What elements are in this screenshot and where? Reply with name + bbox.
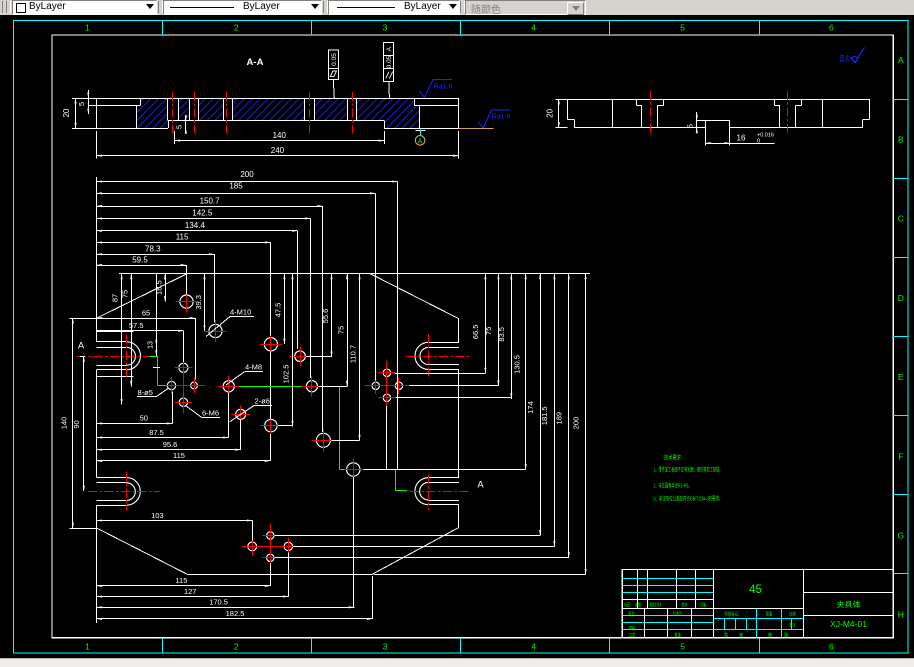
- svg-text:59.5: 59.5: [132, 255, 148, 264]
- svg-text:1: 1: [85, 642, 90, 652]
- svg-text:1、零件加工表面不应有划痕、擦伤等加工缺陷。: 1、零件加工表面不应有划痕、擦伤等加工缺陷。: [654, 466, 723, 474]
- svg-text:200: 200: [240, 170, 254, 179]
- svg-text:134.4: 134.4: [185, 221, 206, 230]
- svg-text:103: 103: [151, 511, 164, 520]
- svg-text:2: 2: [234, 23, 239, 33]
- svg-text:6-M6: 6-M6: [202, 409, 219, 418]
- svg-text:更改文件号: 更改文件号: [650, 601, 662, 608]
- svg-text:20: 20: [546, 108, 555, 117]
- svg-text:4-M8: 4-M8: [245, 363, 262, 372]
- svg-text:E: E: [898, 372, 904, 382]
- svg-text:115: 115: [176, 233, 189, 242]
- svg-text:G: G: [897, 531, 904, 541]
- svg-text:审核: 审核: [629, 625, 636, 632]
- svg-text:115: 115: [175, 576, 187, 585]
- svg-text:65: 65: [142, 308, 150, 317]
- svg-text:A: A: [418, 138, 423, 145]
- svg-text:189: 189: [555, 412, 564, 425]
- svg-text:57.5: 57.5: [129, 321, 144, 330]
- svg-text:78.3: 78.3: [145, 245, 161, 254]
- svg-text:102.5: 102.5: [282, 365, 291, 384]
- svg-text:5: 5: [680, 642, 685, 652]
- svg-text:张: 张: [739, 632, 744, 639]
- svg-text:1: 1: [85, 23, 90, 33]
- svg-text:H: H: [898, 610, 904, 620]
- svg-text:D: D: [898, 293, 904, 303]
- svg-text:比例: 比例: [789, 611, 796, 618]
- svg-text:16: 16: [737, 134, 746, 143]
- svg-text:其余: 其余: [840, 54, 850, 64]
- svg-text:设计: 设计: [628, 610, 635, 617]
- svg-text:Ra1.6: Ra1.6: [434, 84, 453, 91]
- svg-text:47.5: 47.5: [274, 303, 283, 318]
- svg-text:6: 6: [829, 642, 834, 652]
- svg-text:66.5: 66.5: [471, 325, 480, 340]
- svg-text:83.5: 83.5: [497, 327, 506, 342]
- svg-text:6: 6: [829, 23, 834, 33]
- svg-text:140: 140: [273, 131, 287, 140]
- svg-text:夹具体: 夹具体: [837, 599, 862, 609]
- svg-text:共: 共: [724, 632, 729, 639]
- svg-text:5: 5: [175, 125, 184, 129]
- svg-text:20: 20: [62, 108, 71, 117]
- svg-text:87: 87: [111, 294, 120, 302]
- svg-text:A-A: A-A: [247, 57, 264, 68]
- svg-text:A: A: [386, 46, 393, 51]
- svg-text:240: 240: [271, 146, 285, 155]
- svg-text:150.7: 150.7: [200, 196, 221, 205]
- svg-text:170.5: 170.5: [209, 598, 228, 607]
- svg-text:质量: 质量: [766, 611, 773, 618]
- svg-text:批准: 批准: [674, 632, 681, 639]
- svg-text:4: 4: [531, 642, 536, 652]
- svg-text:181.5: 181.5: [540, 406, 549, 425]
- svg-text:第: 第: [768, 632, 773, 639]
- svg-text:110.7: 110.7: [349, 345, 358, 363]
- svg-text:2: 2: [234, 642, 239, 652]
- svg-text:标记: 标记: [624, 601, 630, 608]
- svg-text:Ra1.6: Ra1.6: [492, 114, 511, 121]
- svg-text:标准化: 标准化: [673, 610, 681, 617]
- svg-text:3: 3: [383, 23, 388, 33]
- svg-text:3: 3: [383, 642, 388, 652]
- svg-text:4: 4: [531, 23, 536, 33]
- svg-text:工艺: 工艺: [629, 633, 636, 638]
- svg-text:140: 140: [60, 417, 69, 430]
- svg-text:0: 0: [757, 139, 760, 145]
- svg-text:200: 200: [571, 417, 580, 430]
- svg-text:处数: 处数: [635, 601, 641, 608]
- svg-text:5: 5: [680, 23, 685, 33]
- svg-text:50: 50: [140, 414, 148, 423]
- svg-text:4-M10: 4-M10: [230, 308, 251, 317]
- svg-text:0.05: 0.05: [386, 55, 393, 68]
- svg-text:3、未注形位公差应符合GB/T1184-3的要求。: 3、未注形位公差应符合GB/T1184-3的要求。: [654, 495, 723, 503]
- svg-text:1:1: 1:1: [789, 623, 796, 629]
- svg-text:13: 13: [147, 341, 154, 349]
- svg-text:90: 90: [72, 420, 81, 428]
- svg-text:签字: 签字: [682, 601, 688, 607]
- svg-text:87.5: 87.5: [149, 428, 164, 437]
- svg-text:B: B: [898, 135, 904, 145]
- svg-text:A: A: [898, 55, 904, 65]
- svg-text:5: 5: [77, 102, 86, 106]
- svg-text:张: 张: [784, 632, 789, 639]
- svg-text:C: C: [898, 214, 904, 224]
- svg-text:130.5: 130.5: [512, 355, 521, 374]
- svg-text:18.5: 18.5: [155, 280, 164, 295]
- svg-text:XJ-M4-01: XJ-M4-01: [830, 619, 867, 629]
- svg-text:A: A: [78, 341, 85, 352]
- svg-text:2-ø6: 2-ø6: [255, 397, 270, 406]
- svg-text:2、未注圆角半径R3~R5。: 2、未注圆角半径R3~R5。: [654, 482, 692, 490]
- svg-text:185: 185: [229, 182, 243, 191]
- svg-text:75: 75: [121, 290, 130, 298]
- svg-text:115: 115: [173, 451, 185, 460]
- svg-text:127: 127: [184, 587, 197, 596]
- svg-text:5: 5: [686, 124, 695, 128]
- svg-text:39.3: 39.3: [194, 295, 203, 310]
- svg-text:A: A: [477, 480, 484, 491]
- svg-text:55.6: 55.6: [321, 309, 330, 324]
- svg-text:45: 45: [749, 584, 762, 596]
- svg-text:F: F: [898, 452, 903, 462]
- svg-text:0.05: 0.05: [331, 53, 338, 66]
- svg-text:182.5: 182.5: [226, 609, 245, 618]
- svg-text:阶段标记: 阶段标记: [725, 611, 739, 618]
- svg-text:日期: 日期: [700, 602, 706, 608]
- svg-text:技术要求: 技术要求: [664, 454, 681, 462]
- svg-text:174: 174: [526, 401, 535, 414]
- svg-text:95.6: 95.6: [163, 440, 178, 449]
- svg-text:142.5: 142.5: [192, 209, 213, 218]
- svg-text:75: 75: [337, 326, 346, 334]
- svg-text:75: 75: [484, 327, 493, 335]
- svg-text:8-ø5: 8-ø5: [138, 388, 153, 397]
